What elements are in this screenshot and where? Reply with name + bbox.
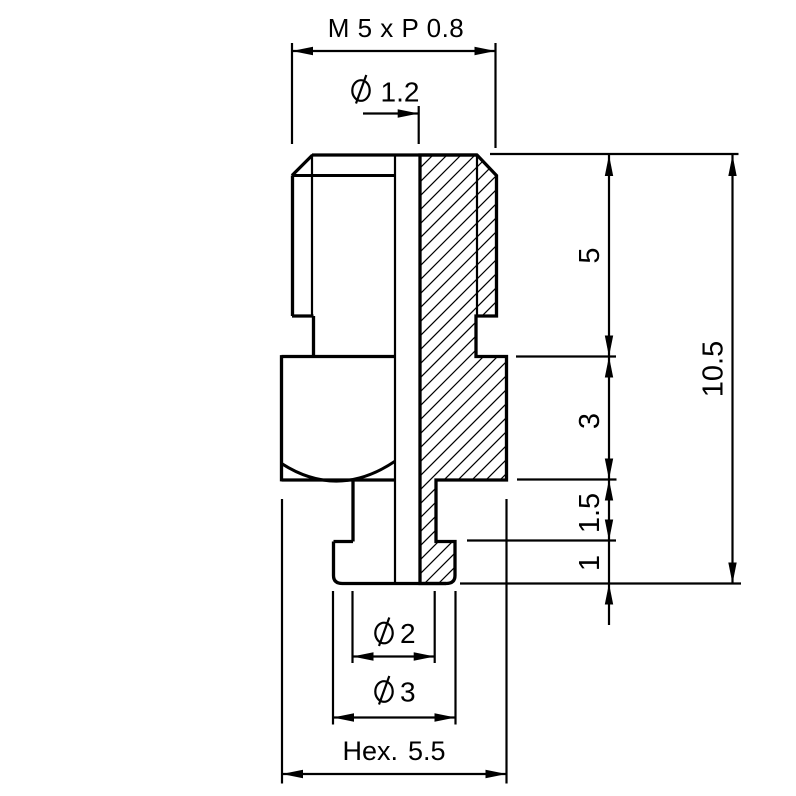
svg-text:M 5 x P 0.8: M 5 x P 0.8 [328, 13, 465, 43]
svg-text:2: 2 [400, 618, 416, 649]
svg-text:3: 3 [400, 677, 416, 708]
svg-text:1.2: 1.2 [381, 77, 420, 108]
svg-text:5.5: 5.5 [408, 736, 446, 766]
svg-text:5: 5 [574, 247, 606, 263]
svg-text:10.5: 10.5 [698, 341, 730, 397]
svg-text:3: 3 [574, 413, 606, 429]
svg-text:Hex.: Hex. [343, 736, 399, 766]
svg-text:1: 1 [574, 555, 606, 571]
svg-text:1.5: 1.5 [574, 493, 606, 533]
